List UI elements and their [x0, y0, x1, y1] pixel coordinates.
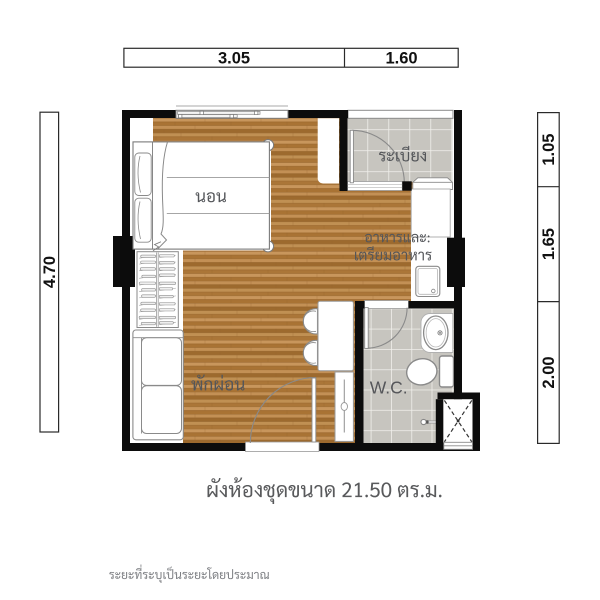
svg-text:W.C.: W.C.: [370, 378, 408, 398]
svg-text:2.00: 2.00: [540, 356, 558, 388]
svg-text:1.60: 1.60: [385, 49, 417, 67]
svg-text:3.05: 3.05: [218, 49, 250, 67]
svg-text:1.65: 1.65: [540, 228, 558, 260]
svg-text:1.05: 1.05: [540, 134, 558, 166]
svg-text:4.70: 4.70: [41, 256, 59, 288]
